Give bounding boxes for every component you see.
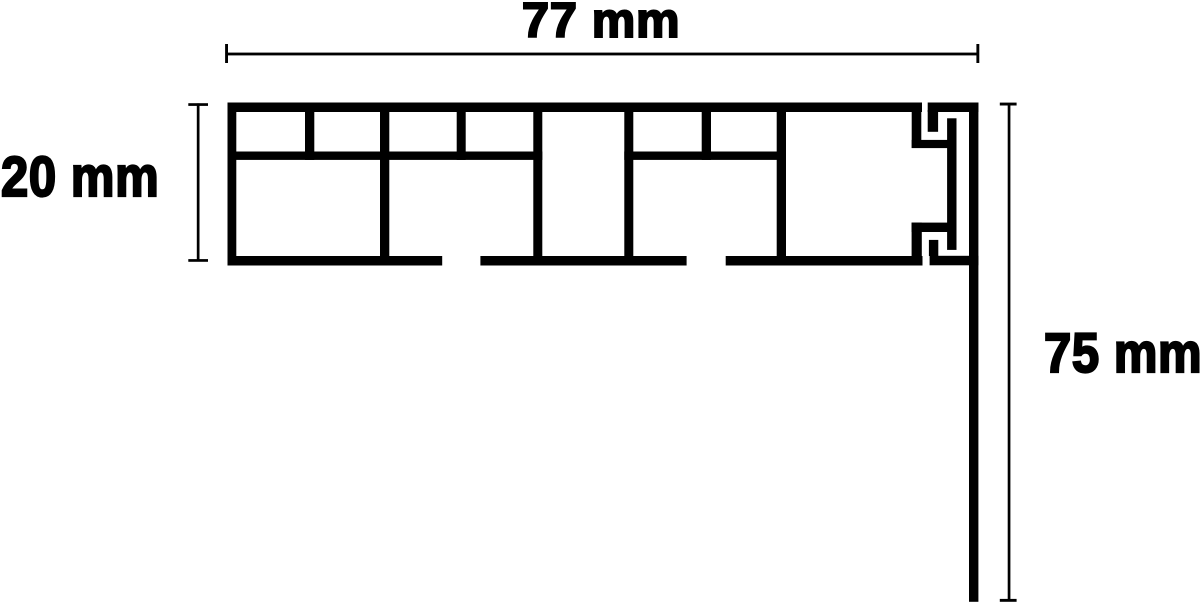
svg-text:77 mm: 77 mm <box>522 0 680 48</box>
svg-text:20 mm: 20 mm <box>1 146 159 209</box>
svg-text:75 mm: 75 mm <box>1044 323 1200 384</box>
